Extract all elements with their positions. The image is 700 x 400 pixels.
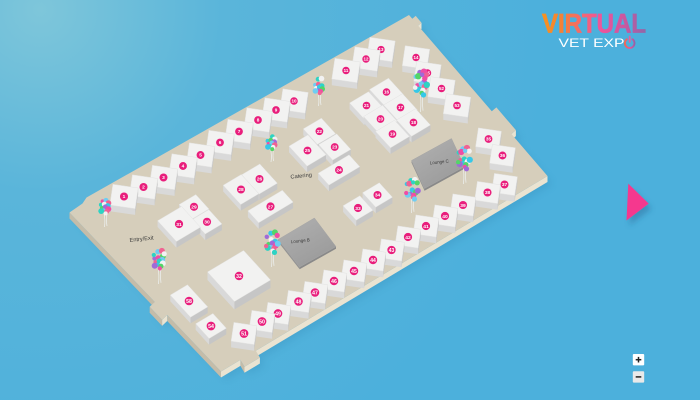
svg-text:25: 25 (305, 148, 311, 153)
svg-text:38: 38 (485, 190, 491, 196)
svg-text:40: 40 (442, 214, 448, 220)
svg-text:28: 28 (238, 187, 244, 193)
svg-text:35: 35 (486, 137, 492, 142)
svg-text:10: 10 (291, 99, 297, 104)
svg-text:45: 45 (351, 269, 357, 275)
svg-text:32: 32 (236, 274, 242, 280)
svg-text:29: 29 (191, 205, 197, 211)
svg-text:42: 42 (405, 235, 411, 241)
svg-text:26: 26 (257, 177, 263, 183)
svg-text:1: 1 (123, 194, 126, 200)
svg-text:31: 31 (176, 222, 182, 228)
svg-text:18: 18 (411, 120, 417, 125)
svg-text:2: 2 (142, 185, 145, 191)
svg-text:19: 19 (390, 132, 396, 137)
svg-text:58: 58 (186, 299, 192, 305)
svg-text:49: 49 (275, 311, 281, 317)
svg-text:27: 27 (268, 204, 274, 210)
svg-text:37: 37 (502, 182, 508, 188)
svg-text:33: 33 (355, 206, 361, 212)
svg-text:48: 48 (296, 299, 302, 305)
svg-text:44: 44 (370, 258, 376, 264)
svg-text:VIRTUAL: VIRTUAL (542, 9, 646, 39)
svg-text:22: 22 (317, 129, 323, 134)
svg-text:24: 24 (336, 168, 342, 174)
svg-text:14: 14 (414, 55, 419, 60)
svg-text:52: 52 (439, 86, 445, 91)
svg-text:43: 43 (389, 248, 395, 254)
svg-text:9: 9 (275, 108, 278, 113)
svg-text:7: 7 (238, 129, 241, 134)
svg-text:11: 11 (344, 68, 349, 73)
svg-text:41: 41 (423, 224, 429, 230)
svg-text:4: 4 (182, 164, 185, 170)
svg-text:6: 6 (219, 140, 222, 145)
svg-text:54: 54 (208, 324, 214, 330)
svg-text:17: 17 (398, 105, 404, 110)
svg-text:5: 5 (199, 153, 202, 158)
svg-text:36: 36 (500, 153, 506, 159)
svg-text:50: 50 (259, 319, 265, 325)
svg-text:20: 20 (378, 117, 384, 122)
svg-text:VET EXP: VET EXP (559, 36, 625, 50)
svg-text:51: 51 (241, 331, 247, 337)
svg-text:3: 3 (162, 175, 165, 181)
svg-text:21: 21 (364, 103, 370, 108)
svg-text:16: 16 (384, 90, 390, 95)
svg-text:39: 39 (460, 203, 466, 209)
svg-text:53: 53 (454, 103, 460, 108)
svg-text:8: 8 (257, 118, 260, 123)
svg-text:46: 46 (331, 279, 337, 285)
svg-text:23: 23 (332, 145, 338, 150)
svg-text:34: 34 (375, 193, 381, 199)
svg-text:47: 47 (312, 290, 318, 296)
svg-text:12: 12 (364, 57, 369, 62)
svg-text:30: 30 (204, 220, 210, 226)
